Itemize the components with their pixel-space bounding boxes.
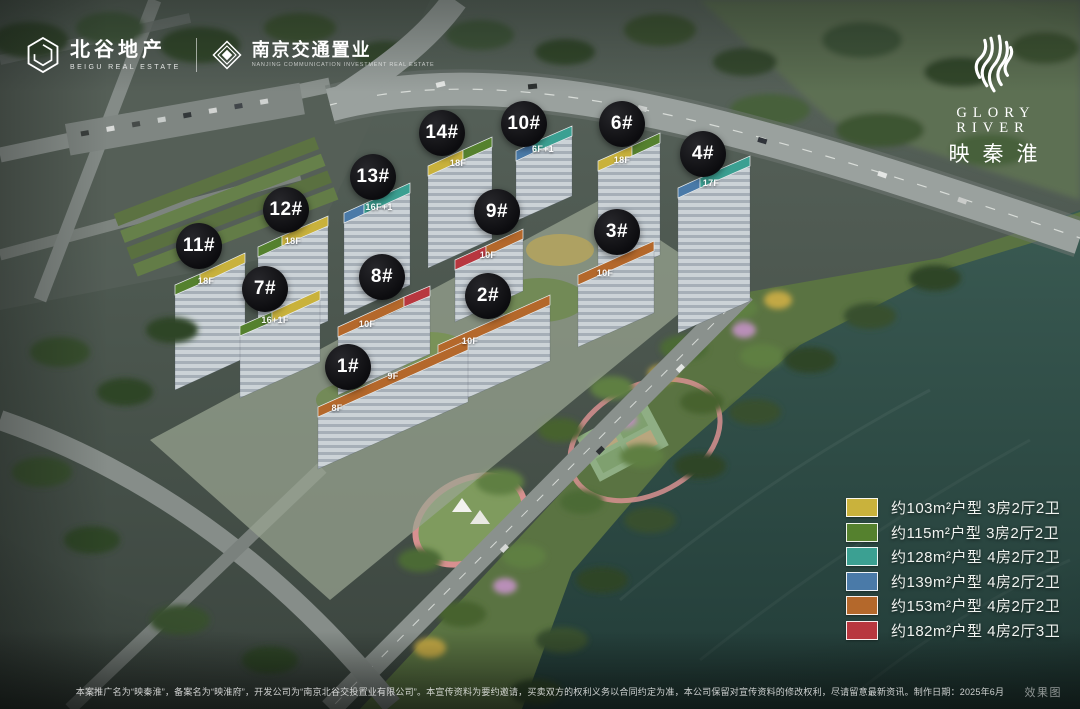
building-badge-10: 10# — [501, 101, 547, 147]
partner-logo: 南京交通置业 NANJING COMMUNICATION INVESTMENT … — [212, 40, 435, 70]
legend-item: 约103m²户型 3房2厅2卫 — [846, 498, 1060, 517]
roof-floor-label: 6F+1 — [532, 144, 554, 154]
beigu-name-cn: 北谷地产 — [70, 40, 181, 60]
rendering-watermark: 效果图 — [1025, 684, 1063, 700]
roof-floor-label: 16+1F — [261, 315, 288, 325]
building-badge-6: 6# — [599, 101, 645, 147]
building-badge-13: 13# — [350, 154, 396, 200]
roof-floor-label: 18F — [614, 155, 630, 165]
partner-diamond-icon — [212, 40, 242, 70]
legend-item: 约115m²户型 3房2厅2卫 — [846, 523, 1060, 542]
building-badge-9: 9# — [474, 189, 520, 235]
unit-legend: 约103m²户型 3房2厅2卫约115m²户型 3房2厅2卫约128m²户型 4… — [846, 498, 1060, 646]
legend-label: 约115m²户型 3房2厅2卫 — [891, 522, 1059, 543]
building-badge-2: 2# — [465, 273, 511, 319]
building-badge-7: 7# — [242, 266, 288, 312]
project-name-cn: 映秦淮 — [918, 144, 1068, 165]
building-badge-3: 3# — [594, 209, 640, 255]
legend-label: 约153m²户型 4房2厅2卫 — [891, 595, 1060, 616]
roof-floor-label: 10F — [359, 319, 375, 329]
roof-floor-label: 16F+1 — [365, 202, 392, 212]
roof-floor-label: 18F — [285, 236, 301, 246]
building-badge-14: 14# — [419, 110, 465, 156]
roof-floor-label: 9F — [387, 371, 398, 381]
partner-name-cn: 南京交通置业 — [252, 41, 435, 59]
beigu-name-en: BEIGU REAL ESTATE — [70, 64, 181, 71]
legend-swatch — [846, 621, 878, 640]
partner-name-en: NANJING COMMUNICATION INVESTMENT REAL ES… — [252, 63, 435, 69]
legend-item: 约153m²户型 4房2厅2卫 — [846, 596, 1060, 615]
roof-floor-label: 10F — [597, 268, 613, 278]
legend-label: 约103m²户型 3房2厅2卫 — [891, 497, 1060, 518]
legend-swatch — [846, 596, 878, 615]
legend-swatch — [846, 572, 878, 591]
project-logo: GLORY RIVER 映秦淮 — [918, 30, 1068, 165]
roof-floor-label: 8F — [331, 403, 342, 413]
legend-label: 约139m²户型 4房2厅2卫 — [891, 571, 1060, 592]
poster-canvas: 北谷地产 BEIGU REAL ESTATE 南京交通置业 NANJING CO… — [0, 0, 1080, 709]
building-badge-12: 12# — [263, 187, 309, 233]
logo-divider — [196, 38, 197, 72]
legend-label: 约128m²户型 4房2厅2卫 — [891, 546, 1060, 567]
project-name-en: GLORY RIVER — [918, 106, 1068, 135]
legend-swatch — [846, 498, 878, 517]
beigu-logo: 北谷地产 BEIGU REAL ESTATE — [26, 36, 181, 74]
building-badge-8: 8# — [359, 254, 405, 300]
roof-floor-label: 18F — [450, 158, 466, 168]
legend-label: 约182m²户型 4房2厅3卫 — [891, 620, 1060, 641]
building-badge-4: 4# — [680, 131, 726, 177]
building-badge-1: 1# — [325, 344, 371, 390]
building-badge-11: 11# — [176, 223, 222, 269]
developer-logos: 北谷地产 BEIGU REAL ESTATE 南京交通置业 NANJING CO… — [26, 36, 434, 74]
roof-floor-label: 18F — [198, 276, 214, 286]
legend-swatch — [846, 523, 878, 542]
roof-floor-label: 17F — [703, 178, 719, 188]
legend-swatch — [846, 547, 878, 566]
legend-item: 约182m²户型 4房2厅3卫 — [846, 621, 1060, 640]
legend-item: 约139m²户型 4房2厅2卫 — [846, 572, 1060, 591]
legend-item: 约128m²户型 4房2厅2卫 — [846, 547, 1060, 566]
beigu-hexagon-icon — [26, 36, 60, 74]
roof-floor-label: 10F — [480, 250, 496, 260]
glory-river-flame-icon — [972, 30, 1014, 96]
roof-floor-label: 10F — [462, 336, 478, 346]
legal-disclaimer: 本案推广名为“映秦淮”，备案名为“映淮府”，开发公司为“南京北谷交投置业有限公司… — [0, 685, 1080, 698]
